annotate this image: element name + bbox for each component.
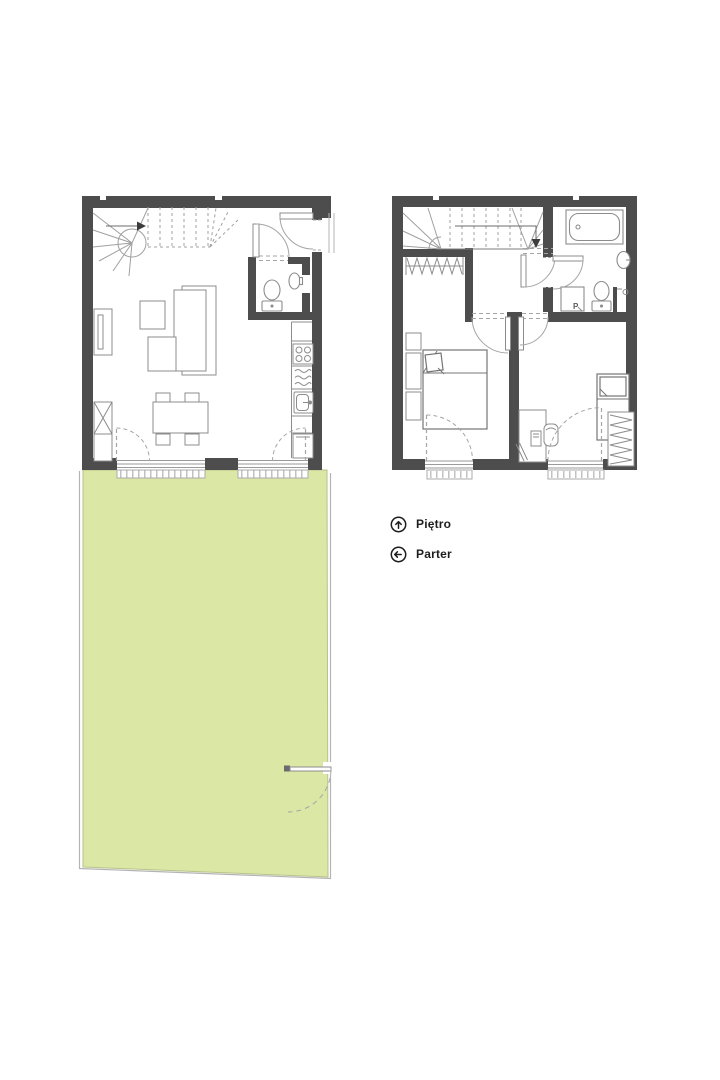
garden-lawn: [83, 470, 328, 877]
fridge-icon: [293, 434, 313, 458]
wardrobe-icon: [608, 412, 634, 466]
double-bed-icon: [423, 350, 487, 429]
living-room: [94, 286, 216, 375]
kitchen: [292, 322, 314, 458]
washing-machine-label: P: [573, 302, 579, 311]
dishwasher-icon: [295, 370, 311, 386]
desk-chair-icon: [544, 424, 558, 446]
legend-item-pietro: Piętro: [390, 516, 452, 533]
legend-label-pietro: Piętro: [416, 516, 451, 533]
wardrobe-niche: [406, 257, 463, 275]
tv-icon: [98, 315, 103, 349]
hall-doors: [472, 314, 548, 354]
desk-icon: [516, 410, 558, 462]
dresser: [406, 353, 421, 389]
entry-porch-lines: [329, 213, 334, 253]
nightstand: [406, 333, 421, 350]
floor-legend: Piętro Parter: [390, 516, 452, 576]
bathroom-door-swing: [553, 259, 583, 289]
bathroom-toilet-icon: [592, 282, 611, 312]
garden-gate-leaf: [290, 767, 331, 771]
threshold: [117, 470, 205, 478]
bedroom-left: [406, 333, 487, 429]
legend-label-parter: Parter: [416, 546, 452, 563]
dining-table: [153, 402, 208, 433]
wc-door-leaf: [253, 224, 259, 257]
arrow-left-circle-icon: [390, 546, 407, 563]
legend-item-parter: Parter: [390, 546, 452, 563]
pietro-floor-plan: P: [392, 196, 637, 479]
wc-door-swing: [256, 224, 289, 257]
toilet-icon: [262, 280, 282, 311]
staircase-parter: [93, 207, 238, 276]
cooktop-icon: [293, 344, 313, 364]
sofa-seat: [174, 290, 206, 371]
arrow-up-circle-icon: [390, 516, 407, 533]
bathroom-sink-icon: [617, 252, 630, 269]
laptop-icon: [531, 431, 541, 446]
bedroom-right: [516, 374, 634, 466]
garden-area: [80, 470, 335, 879]
washing-machine-icon: P: [561, 287, 584, 311]
wc-sink-icon: [289, 273, 303, 289]
storage-cabinet: [94, 402, 112, 461]
wc-room: [253, 224, 303, 311]
armchair-table: [140, 301, 165, 329]
bathtub-icon: [566, 210, 623, 244]
floorplan-graphic: P: [0, 0, 720, 1080]
pillow: [425, 353, 443, 372]
parter-floor-plan: [82, 196, 334, 478]
bathroom-door-leaf: [553, 256, 583, 261]
gate-hinge: [284, 766, 290, 772]
sofa-chaise: [148, 337, 176, 371]
dining-set: [153, 393, 208, 445]
nightstand: [406, 392, 421, 420]
staircase-pietro: [403, 208, 543, 249]
